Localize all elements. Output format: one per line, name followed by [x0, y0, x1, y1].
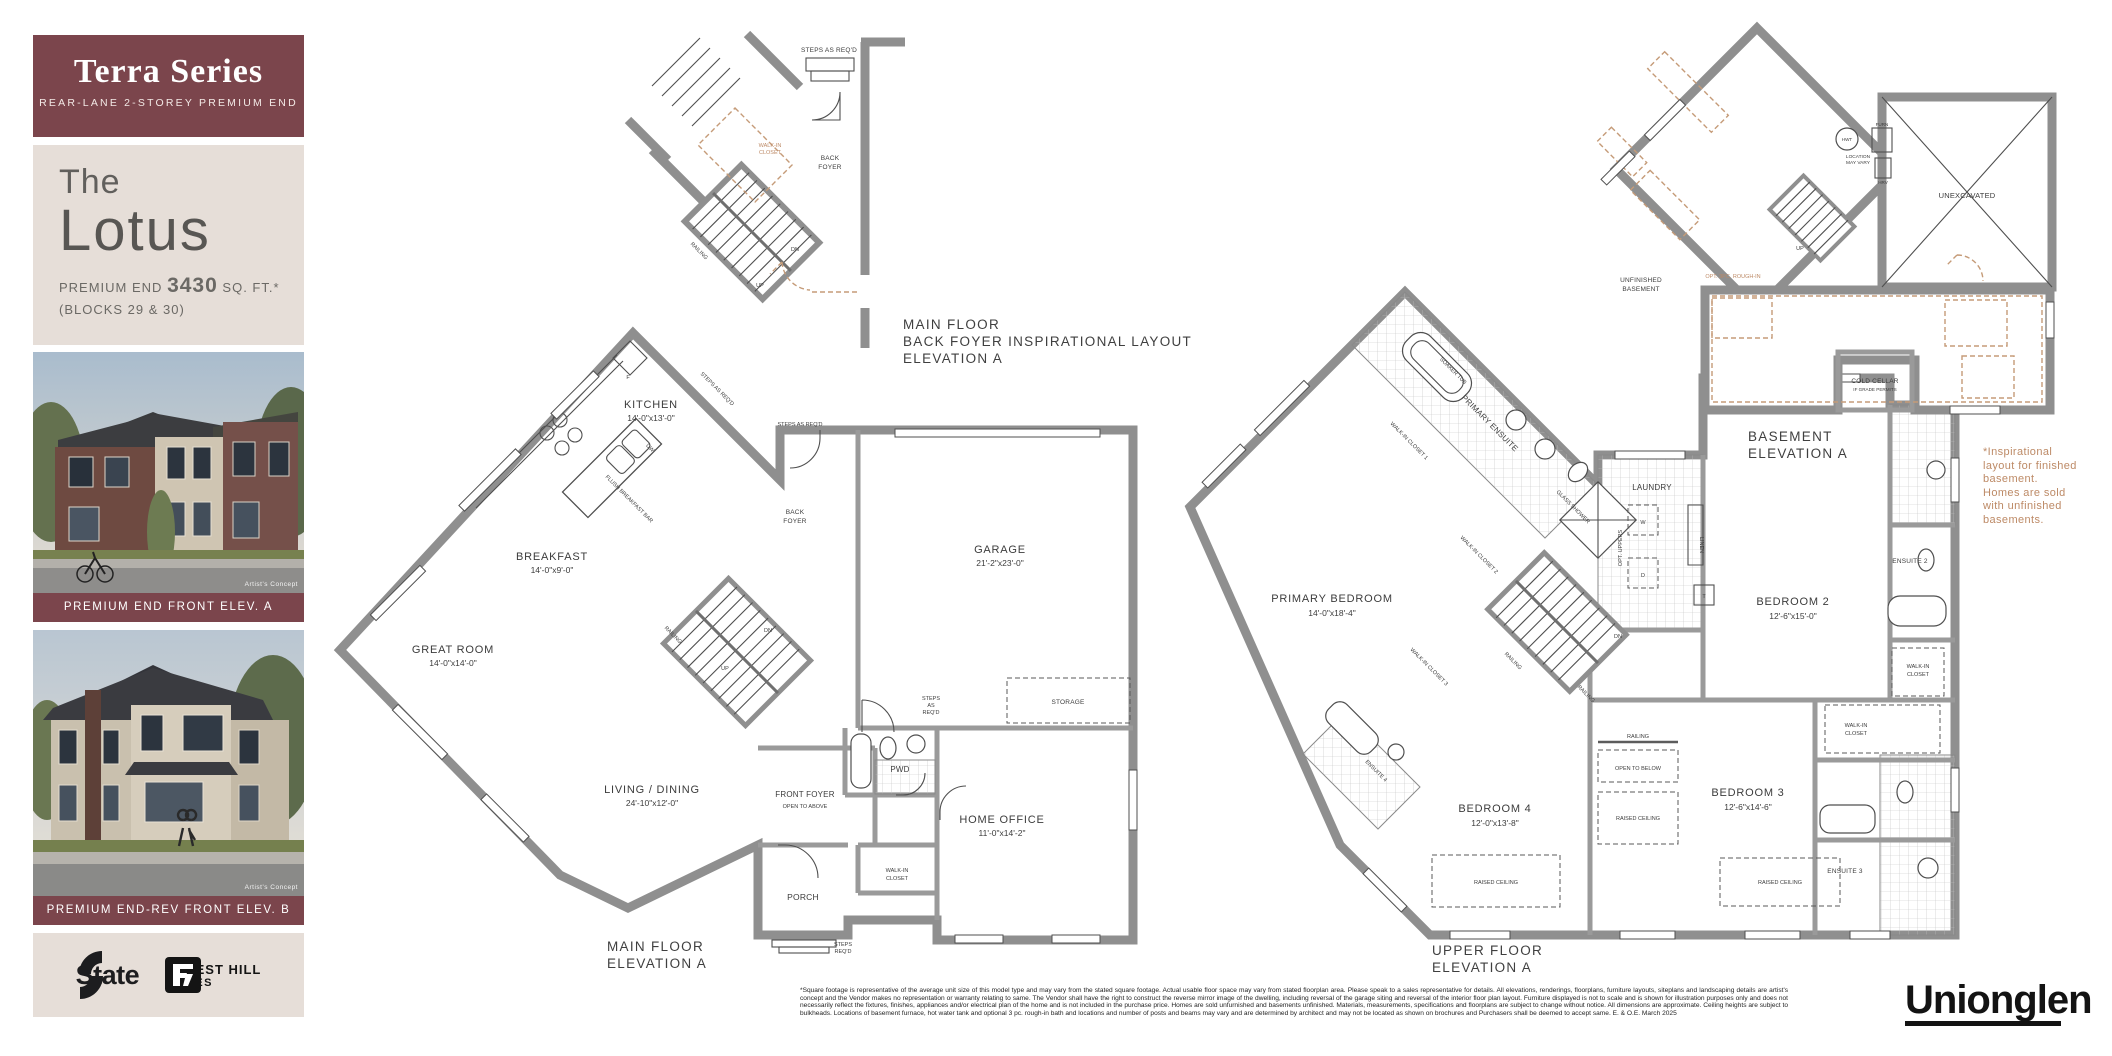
wic-b3-label2: CLOSET: [1845, 731, 1868, 737]
primary-bedroom-label: PRIMARY BEDROOM: [1271, 593, 1393, 605]
elevation-b-caption: PREMIUM END-REV FRONT ELEV. B: [33, 896, 304, 925]
elevation-a-illustration: [33, 352, 304, 593]
wic-b2-label2: CLOSET: [1907, 672, 1930, 678]
main-floor-plan: KITCHEN 14'-0"x13'-0" BREAKFAST 14'-0"x9…: [320, 230, 1180, 970]
steps-label: STEPS AS REQ'D: [801, 47, 857, 54]
state-logo-icon: [76, 949, 106, 1001]
main-caption-line1: MAIN FLOOR: [607, 938, 707, 955]
kitchen-dims: 14'-0"x13'-0": [627, 413, 675, 423]
basement-note: *Inspirational layout for finished basem…: [1983, 446, 2077, 527]
basement-wing-walls: [1616, 28, 1898, 310]
wic-b2-label: WALK-IN: [1907, 664, 1930, 670]
railing-label: RAILING: [1627, 734, 1649, 740]
forest-hill-logo: FOREST HILL HOMES: [165, 962, 261, 989]
hrv-label: HRV: [1878, 180, 1889, 185]
raised-ceiling-b4-label: RAISED CEILING: [1474, 880, 1518, 886]
unfinished-label2: BASEMENT: [1622, 286, 1659, 293]
basement-plan: UNEXCAVATED UNFINISHED BASEMENT COLD CEL…: [1555, 20, 2065, 420]
elevation-a-caption: PREMIUM END FRONT ELEV. A: [33, 593, 304, 622]
artist-concept-credit: Artist's Concept: [245, 581, 298, 588]
open-below-label: OPEN TO BELOW: [1615, 766, 1662, 772]
legal-disclaimer: *Square footage is representative of the…: [800, 987, 1788, 1017]
raised-ceiling-label: RAISED CEILING: [1616, 816, 1660, 822]
main-floor-caption: MAIN FLOOR ELEVATION A: [607, 938, 707, 972]
garage-label: GARAGE: [974, 544, 1026, 556]
unionglen-logo: Unionglen: [1905, 980, 2092, 1026]
living-dining-label: LIVING / DINING: [604, 784, 700, 796]
upper-caption-line1: UPPER FLOOR: [1432, 942, 1543, 959]
walk-in-closet-label2: CLOSET: [759, 150, 782, 156]
home-office-dims: 11'-0"x14'-2": [979, 828, 1026, 838]
primary-bedroom-dims: 14'-0"x18'-4": [1308, 608, 1356, 618]
basement-caption: BASEMENT ELEVATION A: [1748, 428, 1848, 462]
note-line4: Homes are sold: [1983, 487, 2077, 501]
kitchen-label: KITCHEN: [624, 399, 678, 411]
porch-label: PORCH: [787, 892, 819, 902]
up-label: UP: [1796, 246, 1804, 252]
model-name: Lotus: [59, 202, 304, 260]
size-prefix: PREMIUM END: [59, 280, 162, 295]
dryer-label: D: [1641, 573, 1645, 579]
bedroom4-dims: 12'-0"x13'-8": [1471, 818, 1519, 828]
storage-label: STORAGE: [1051, 699, 1085, 706]
state-logo: State: [76, 960, 140, 991]
roughin-label: OPT. 3PC. ROUGH-IN: [1705, 274, 1760, 280]
model-panel: The Lotus PREMIUM END 3430 SQ. FT.* (BLO…: [33, 145, 304, 345]
living-dining-dims: 24'-10"x12'-0": [626, 798, 678, 808]
note-line5: with unfinished: [1983, 500, 2077, 514]
back-foyer-label2: FOYER: [818, 164, 841, 171]
elevation-b-photo: Artist's Concept: [33, 630, 304, 896]
dn-label: DN: [764, 628, 772, 634]
up-label: UP: [721, 666, 729, 672]
model-size: PREMIUM END 3430 SQ. FT.*: [59, 274, 304, 298]
dn-label: DN: [1614, 634, 1622, 640]
wic-b3-label: WALK-IN: [1845, 723, 1868, 729]
hwt-label: HWT: [1842, 137, 1853, 142]
unfinished-label: UNFINISHED: [1620, 277, 1662, 284]
walk-in-closet-label: WALK-IN: [759, 143, 782, 149]
note-line2: layout for finished: [1983, 460, 2077, 474]
model-prefix: The: [59, 163, 304, 202]
bedroom2-label: BEDROOM 2: [1756, 596, 1829, 608]
great-room-label: GREAT ROOM: [412, 644, 494, 656]
note-line6: basements.: [1983, 514, 2077, 528]
builder-logos-panel: State FOREST HILL HOMES: [33, 933, 304, 1017]
series-title: Terra Series: [33, 35, 304, 91]
upper-floor-caption: UPPER FLOOR ELEVATION A: [1432, 942, 1543, 976]
brochure-page: Terra Series REAR-LANE 2-STOREY PREMIUM …: [0, 0, 2112, 1056]
steps-label-3b: AS: [927, 703, 935, 709]
linen-label: LINEN: [1698, 537, 1704, 553]
basement-caption-line1: BASEMENT: [1748, 428, 1848, 445]
unionglen-logo-text: Unionglen: [1905, 980, 2092, 1020]
front-foyer-label: FRONT FOYER: [775, 790, 834, 799]
back-foyer-label: BACK: [821, 155, 840, 162]
opt-uppers-label: OPT. UPPERS: [1618, 529, 1624, 566]
main-caption-line2: ELEVATION A: [607, 955, 707, 972]
size-suffix: SQ. FT.*: [222, 280, 279, 295]
ensuite2-label: ENSUITE 2: [1892, 558, 1928, 565]
size-value: 3430: [167, 274, 218, 297]
unexcavated-label: UNEXCAVATED: [1939, 191, 1996, 200]
pwd-fixtures: [851, 734, 935, 794]
cold-cellar-label2: IF GRADE PERMITS: [1853, 387, 1896, 392]
note-line1: *Inspirational: [1983, 446, 2077, 460]
back-foyer-label2: FOYER: [783, 518, 806, 525]
elevation-card-b: Artist's Concept PREMIUM END-REV FRONT E…: [33, 630, 304, 925]
raised-ceiling-b3-label: RAISED CEILING: [1758, 880, 1802, 886]
bedroom2-dims: 12'-6"x15'-0": [1769, 611, 1817, 621]
furn-label: FURN: [1876, 122, 1889, 127]
back-foyer-label: BACK: [786, 509, 805, 516]
garage-dims: 21'-2"x23'-0": [976, 558, 1024, 568]
wic-label2: CLOSET: [886, 876, 909, 882]
forest-hill-logo-icon: [165, 957, 201, 993]
basement-caption-line2: ELEVATION A: [1748, 445, 1848, 462]
washer-label: W: [1640, 520, 1646, 526]
wic-label: WALK-IN: [886, 868, 909, 874]
bedroom3-label: BEDROOM 3: [1711, 787, 1784, 799]
upper-caption-line2: ELEVATION A: [1432, 959, 1543, 976]
laundry-label: LAUNDRY: [1632, 483, 1672, 492]
note-line3: basement.: [1983, 473, 2077, 487]
steps-label-4b: REQ'D: [835, 949, 852, 955]
pwd-label: PWD: [890, 765, 909, 774]
bedroom4-label: BEDROOM 4: [1458, 803, 1531, 815]
series-subtitle: REAR-LANE 2-STOREY PREMIUM END: [33, 97, 304, 109]
elevation-b-illustration: [33, 630, 304, 896]
open-above-label: OPEN TO ABOVE: [783, 804, 828, 810]
location-label: LOCATION: [1846, 154, 1871, 160]
model-blocks: (BLOCKS 29 & 30): [59, 302, 304, 317]
great-room-dims: 14'-0"x14'-0": [429, 658, 477, 668]
bedroom3-dims: 12'-6"x14'-6": [1724, 802, 1772, 812]
elevation-a-photo: Artist's Concept: [33, 352, 304, 593]
cold-cellar-label: COLD CELLAR: [1851, 378, 1898, 385]
artist-concept-credit: Artist's Concept: [245, 884, 298, 891]
elevation-card-a: Artist's Concept PREMIUM END FRONT ELEV.…: [33, 352, 304, 622]
ensuite3-label: ENSUITE 3: [1827, 868, 1863, 875]
home-office-label: HOME OFFICE: [959, 814, 1044, 826]
steps-label-4a: STEPS: [834, 942, 852, 948]
series-header: Terra Series REAR-LANE 2-STOREY PREMIUM …: [33, 35, 304, 137]
breakfast-dims: 14'-0"x9'-0": [531, 565, 574, 575]
steps-label-3c: REQ'D: [923, 710, 940, 716]
steps-label-2: STEPS AS REQ'D: [777, 422, 822, 428]
location-label2: MAY VARY: [1846, 160, 1871, 166]
steps-label-3a: STEPS: [922, 696, 940, 702]
breakfast-label: BREAKFAST: [516, 551, 588, 563]
